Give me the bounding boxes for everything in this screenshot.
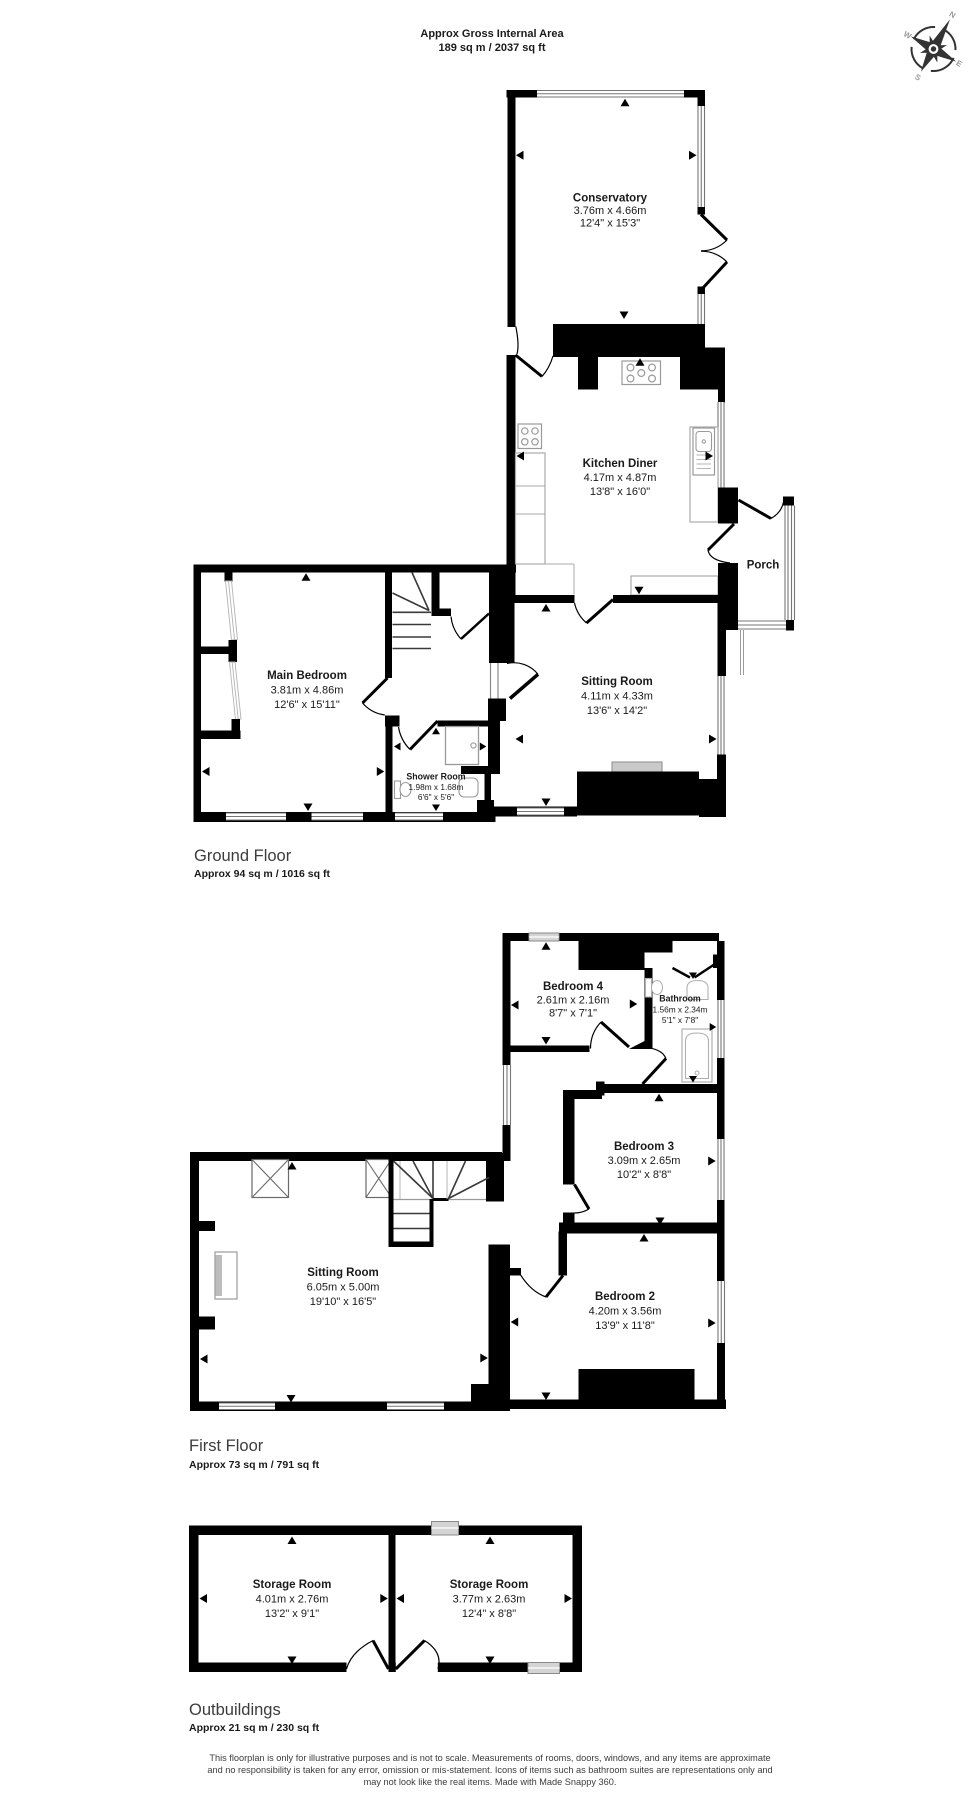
svg-text:Outbuildings: Outbuildings: [189, 1701, 281, 1719]
svg-text:4.01m x 2.76m: 4.01m x 2.76m: [256, 1594, 329, 1606]
svg-text:3.81m x 4.86m: 3.81m x 4.86m: [271, 685, 344, 697]
svg-text:3.77m x 2.63m: 3.77m x 2.63m: [453, 1594, 526, 1606]
svg-text:Bathroom: Bathroom: [659, 994, 701, 1004]
svg-text:Ground Floor: Ground Floor: [194, 847, 292, 865]
svg-text:Shower Room: Shower Room: [406, 772, 465, 782]
svg-text:Approx 21 sq m / 230 sq ft: Approx 21 sq m / 230 sq ft: [189, 1722, 320, 1734]
svg-text:Kitchen Diner: Kitchen Diner: [583, 458, 658, 470]
svg-text:2.61m x 2.16m: 2.61m x 2.16m: [537, 995, 610, 1007]
svg-text:Approx Gross Internal Area: Approx Gross Internal Area: [420, 28, 564, 40]
svg-text:6'6" x 5'6": 6'6" x 5'6": [418, 792, 454, 802]
svg-text:Main Bedroom: Main Bedroom: [267, 670, 347, 682]
svg-text:Sitting Room: Sitting Room: [581, 676, 653, 688]
svg-text:Approx 94 sq m / 1016 sq ft: Approx 94 sq m / 1016 sq ft: [194, 868, 330, 880]
svg-text:Conservatory: Conservatory: [573, 193, 648, 205]
svg-text:12'6" x 15'11": 12'6" x 15'11": [274, 699, 340, 711]
svg-text:and no responsibility is taken: and no responsibility is taken for any e…: [207, 1765, 772, 1775]
svg-text:First Floor: First Floor: [189, 1437, 264, 1455]
svg-text:1.56m x 2.34m: 1.56m x 2.34m: [653, 1005, 708, 1015]
svg-text:10'2" x 8'8": 10'2" x 8'8": [617, 1169, 671, 1181]
svg-text:Sitting Room: Sitting Room: [307, 1267, 379, 1279]
svg-text:19'10" x 16'5": 19'10" x 16'5": [310, 1296, 377, 1308]
svg-text:6.05m x 5.00m: 6.05m x 5.00m: [307, 1282, 380, 1294]
svg-text:3.09m x 2.65m: 3.09m x 2.65m: [608, 1155, 681, 1167]
svg-text:13'8" x 16'0": 13'8" x 16'0": [590, 486, 650, 498]
svg-text:Approx 73 sq m / 791 sq ft: Approx 73 sq m / 791 sq ft: [189, 1459, 320, 1471]
svg-text:3.76m x 4.66m: 3.76m x 4.66m: [574, 205, 647, 217]
svg-text:Bedroom 4: Bedroom 4: [543, 981, 604, 993]
svg-text:13'2" x 9'1": 13'2" x 9'1": [265, 1608, 319, 1620]
svg-text:1.98m x 1.68m: 1.98m x 1.68m: [409, 782, 464, 792]
svg-text:Porch: Porch: [747, 560, 780, 572]
svg-text:12'4" x 15'3": 12'4" x 15'3": [580, 218, 640, 230]
svg-text:8'7" x 7'1": 8'7" x 7'1": [549, 1008, 597, 1020]
svg-text:12'4" x 8'8": 12'4" x 8'8": [462, 1608, 516, 1620]
svg-text:4.17m x 4.87m: 4.17m x 4.87m: [584, 472, 657, 484]
svg-text:189 sq m / 2037 sq ft: 189 sq m / 2037 sq ft: [439, 42, 546, 54]
svg-text:This floorplan is only for ill: This floorplan is only for illustrative …: [209, 1753, 770, 1763]
svg-text:4.11m x 4.33m: 4.11m x 4.33m: [581, 691, 653, 703]
svg-text:may not look like the real ite: may not look like the real items. Made w…: [364, 1777, 617, 1787]
svg-text:5'1" x 7'8": 5'1" x 7'8": [662, 1015, 698, 1025]
svg-text:Bedroom 3: Bedroom 3: [614, 1141, 674, 1153]
svg-text:Bedroom 2: Bedroom 2: [595, 1291, 655, 1303]
svg-text:Storage Room: Storage Room: [450, 1579, 529, 1591]
svg-text:13'9" x 11'8": 13'9" x 11'8": [595, 1320, 655, 1332]
svg-text:4.20m x 3.56m: 4.20m x 3.56m: [589, 1306, 662, 1318]
svg-text:13'6" x 14'2": 13'6" x 14'2": [587, 705, 647, 717]
svg-text:Storage Room: Storage Room: [253, 1579, 332, 1591]
